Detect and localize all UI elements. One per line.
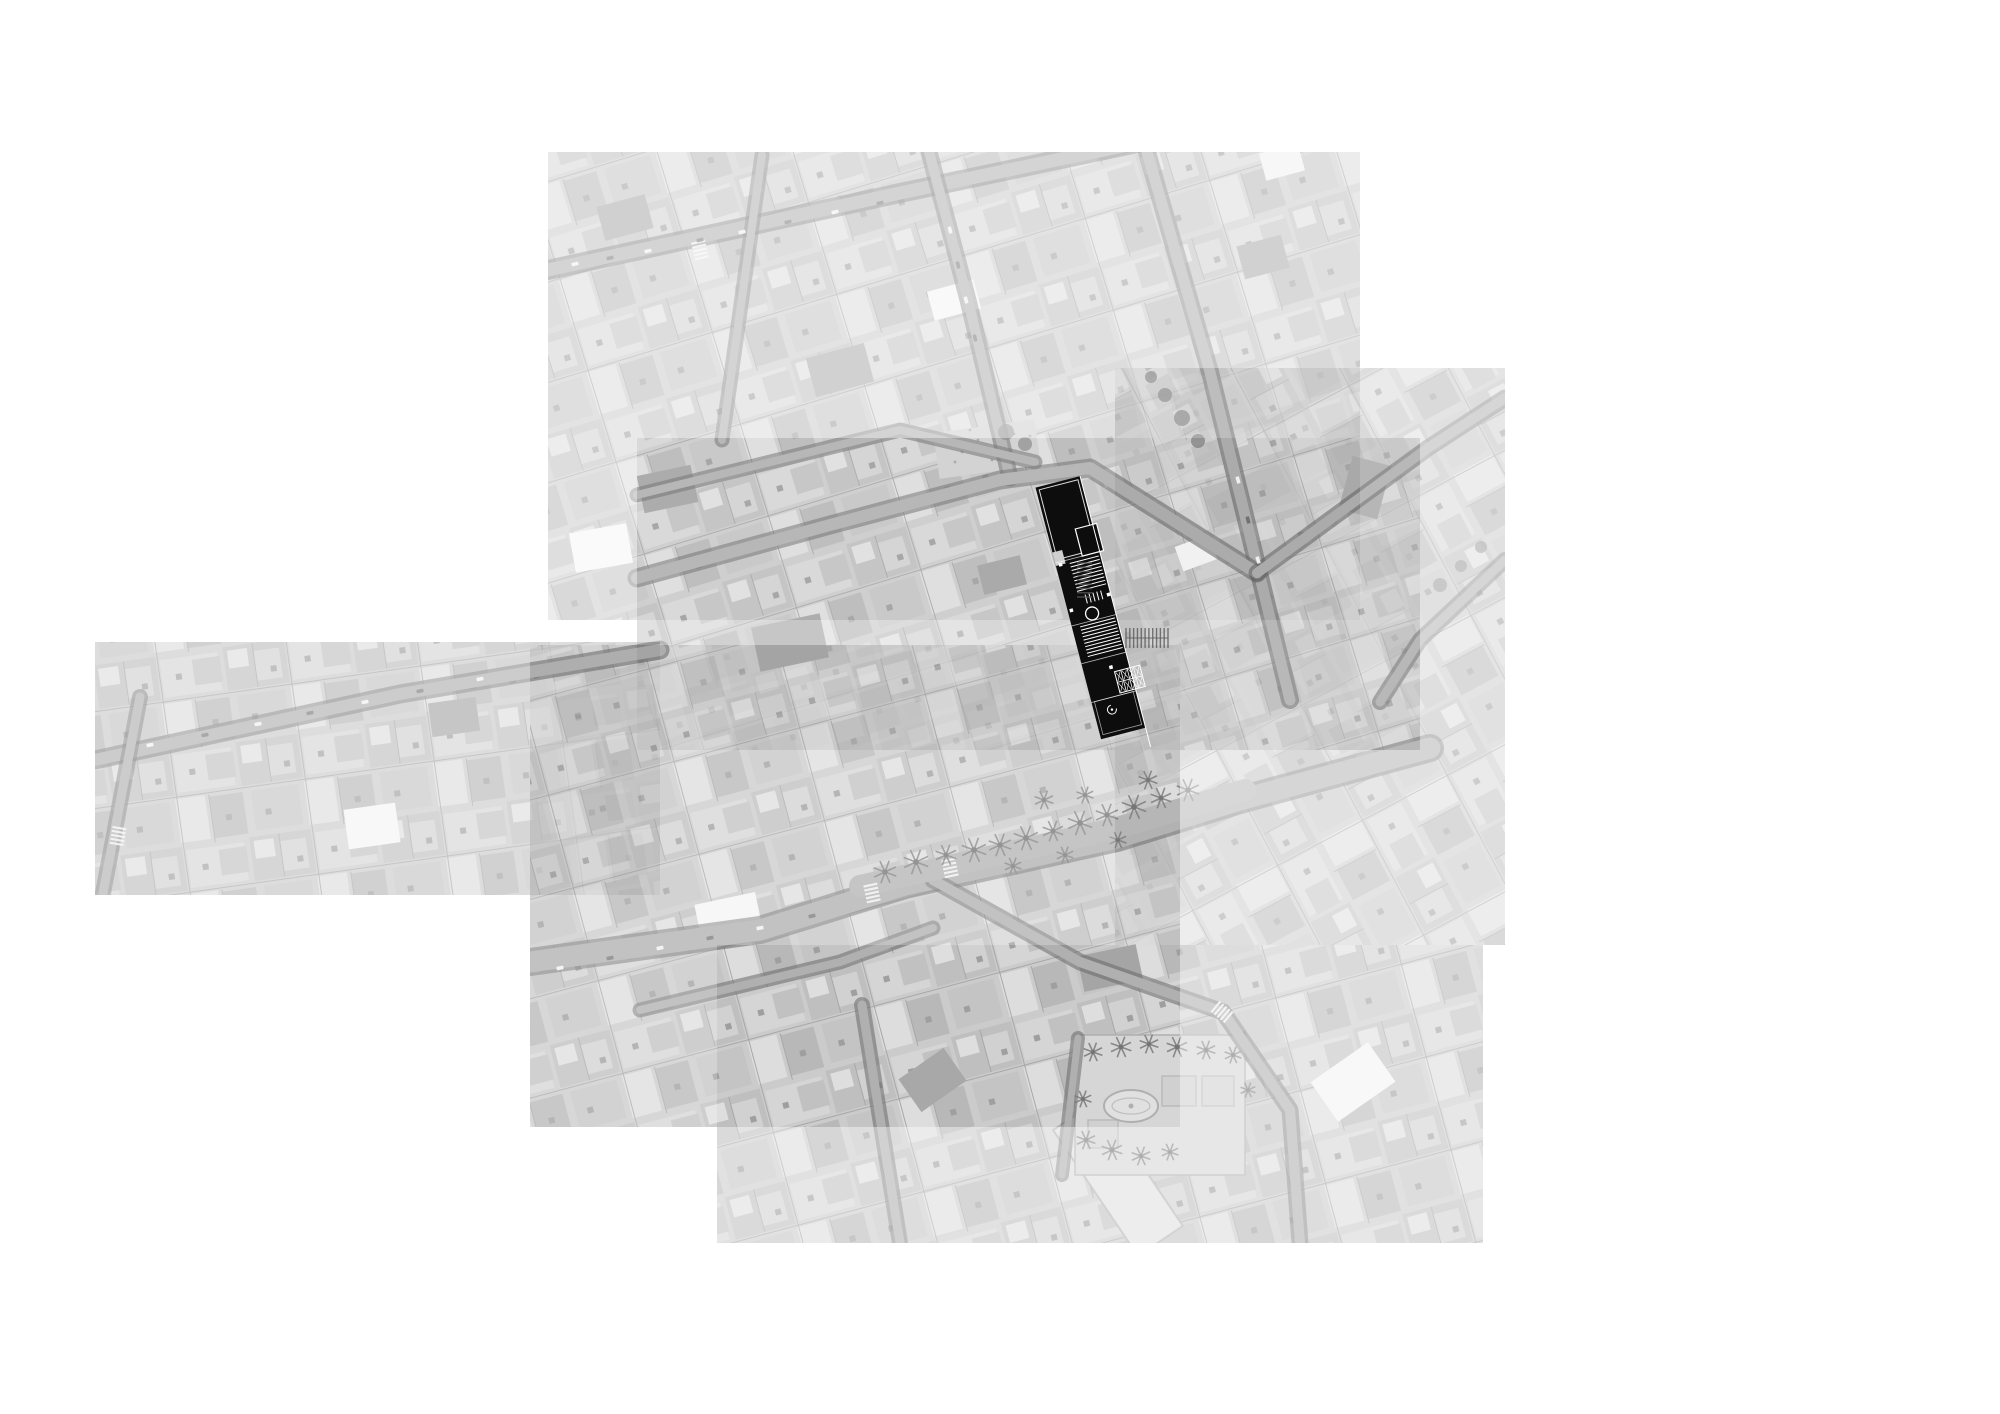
aerial-montage-canvas [0,0,2000,1414]
site-plan-montage [0,0,2000,1414]
photo-tiles [95,96,1505,1256]
